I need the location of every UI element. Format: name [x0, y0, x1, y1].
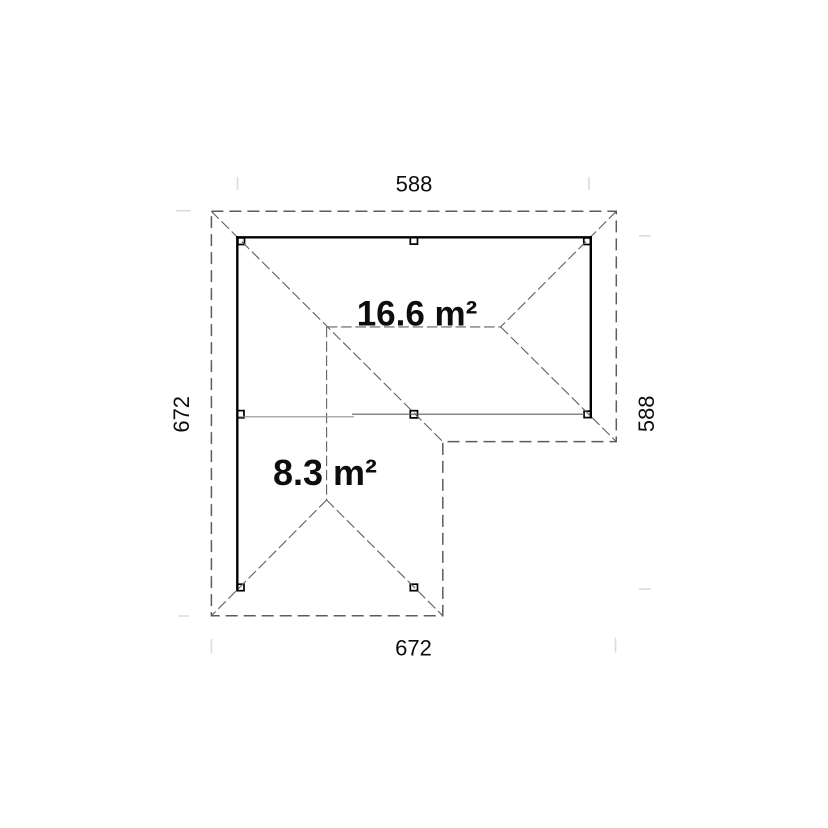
- svg-text:672: 672: [395, 636, 432, 661]
- svg-text:16.6 m²: 16.6 m²: [357, 294, 478, 333]
- svg-text:588: 588: [634, 395, 659, 432]
- svg-text:8.3 m²: 8.3 m²: [273, 452, 377, 493]
- svg-text:588: 588: [396, 172, 433, 197]
- svg-text:672: 672: [169, 396, 194, 433]
